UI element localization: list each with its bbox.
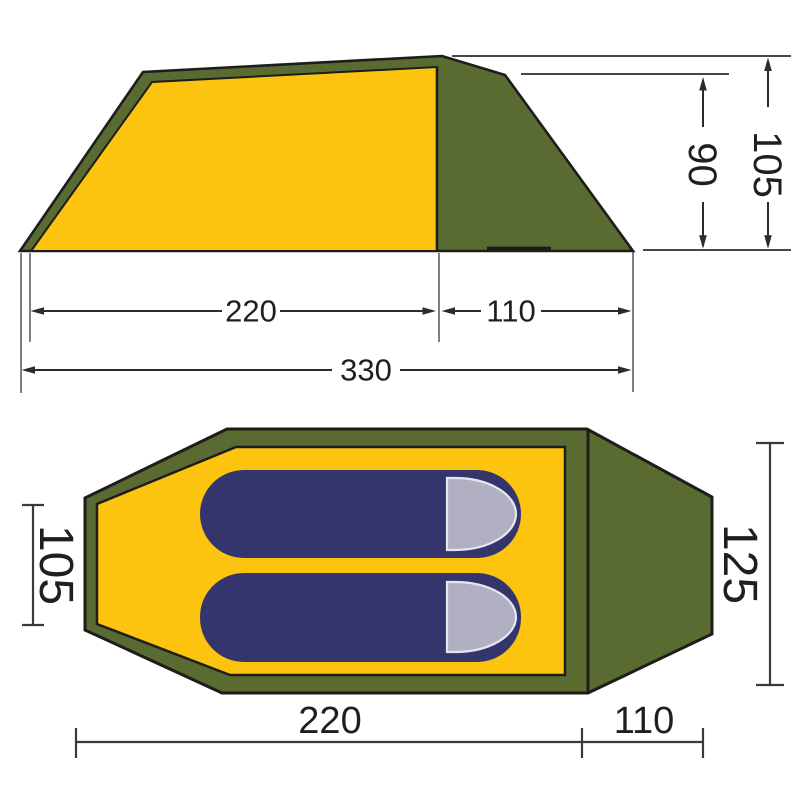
dim-side-vestibule-width: 110 [442, 294, 632, 329]
arrowhead-down [699, 235, 707, 249]
side-total-width-label: 330 [340, 353, 392, 388]
arrowhead-left [22, 366, 36, 374]
arrowhead-right [618, 307, 632, 315]
tent-dimension-diagram: 220 110 330 90 [0, 0, 800, 800]
side-inner-width-label: 220 [225, 294, 277, 329]
arrowhead-down [764, 235, 772, 249]
top-inner-length-label: 220 [298, 700, 361, 742]
arrowhead-left [31, 307, 45, 315]
arrowhead-right [618, 366, 632, 374]
top-head-width-label: 105 [29, 525, 82, 605]
side-view: 220 110 330 90 [20, 56, 791, 393]
dim-top-lengths: 220 110 [76, 700, 703, 758]
top-vestibule-length-label: 110 [614, 700, 675, 742]
dim-top-foot-width: 125 [713, 443, 784, 685]
side-vestibule-width-label: 110 [486, 294, 535, 329]
arrowhead-up [699, 77, 707, 91]
top-view: 105 125 220 110 [22, 429, 784, 758]
dim-top-head-width: 105 [22, 505, 82, 625]
arrowhead-left [442, 307, 456, 315]
top-foot-width-label: 125 [713, 524, 766, 604]
side-peak-height-label: 105 [745, 131, 789, 198]
side-vestibule-height-label: 90 [680, 142, 724, 187]
diagram-canvas: 220 110 330 90 [0, 0, 800, 800]
dim-side-vestibule-height: 90 [680, 77, 724, 249]
arrowhead-up [764, 58, 772, 72]
dim-side-peak-height: 105 [745, 58, 789, 249]
dim-side-total-width: 330 [22, 353, 632, 388]
arrowhead-right [423, 307, 437, 315]
dim-side-inner-width: 220 [31, 294, 437, 329]
